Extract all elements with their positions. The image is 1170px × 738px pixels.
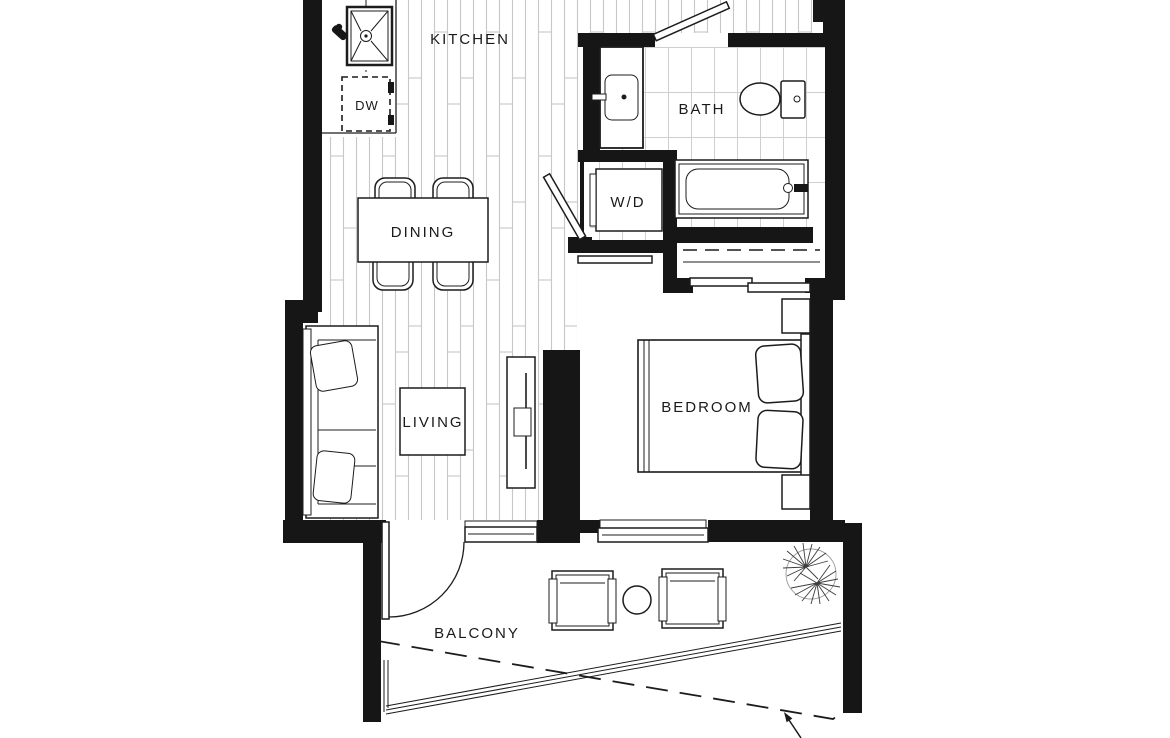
pillow [309, 340, 358, 393]
nightstand-top [782, 299, 810, 333]
wall-segment [825, 42, 845, 292]
dining-label: DINING [391, 224, 456, 241]
tv-console [507, 357, 535, 488]
wall-segment [543, 350, 580, 543]
living-window [465, 521, 537, 542]
closet-sliding-door [690, 278, 752, 286]
floor-plan: KITCHEN BATH DW W/D DINING LIVING BEDROO… [0, 0, 1170, 738]
bedroom-label: BEDROOM [661, 399, 753, 416]
dishwasher-label: DW [355, 98, 379, 113]
wall-segment [283, 520, 386, 543]
balcony-chair [549, 571, 616, 630]
pillow [756, 410, 804, 469]
wall-segment [675, 227, 813, 243]
balcony-table [623, 586, 651, 614]
floor-plan-drawing: KITCHEN BATH DW W/D DINING LIVING BEDROO… [0, 0, 1170, 738]
living-label: LIVING [402, 414, 463, 431]
balcony-chair [659, 569, 726, 628]
bedroom-window [598, 520, 708, 542]
wall-segment [810, 288, 833, 520]
washer-dryer-label: W/D [610, 194, 645, 211]
wall-segment [728, 33, 828, 47]
wall-segment [363, 543, 381, 722]
bathtub [675, 160, 808, 218]
kitchen-label: KITCHEN [430, 31, 510, 48]
balcony-label: BALCONY [434, 625, 520, 642]
wall-segment [663, 278, 693, 293]
planter [783, 543, 840, 604]
pillow [312, 450, 355, 504]
bedroom-door [578, 256, 652, 263]
bath-vanity [592, 47, 643, 148]
sofa [303, 326, 378, 518]
vanity-faucet [592, 94, 606, 100]
tub-faucet [794, 184, 808, 192]
wall-segment [580, 520, 600, 533]
section-arrow [784, 712, 801, 738]
bath-label: BATH [679, 101, 726, 118]
headboard [801, 334, 810, 478]
wall-segment [578, 150, 676, 162]
wall-segment [285, 300, 303, 543]
closet [677, 243, 823, 292]
balcony-door [382, 522, 464, 619]
nightstand-bottom [782, 475, 810, 509]
closet-sliding-door [748, 283, 810, 292]
tv [514, 408, 531, 436]
wall-segment [843, 523, 862, 713]
wall-segment [303, 0, 322, 312]
section-line [378, 641, 846, 719]
wall-segment [592, 240, 667, 253]
pillow [755, 343, 804, 403]
door-swing-arc [389, 542, 464, 617]
wall-segment [708, 520, 845, 542]
